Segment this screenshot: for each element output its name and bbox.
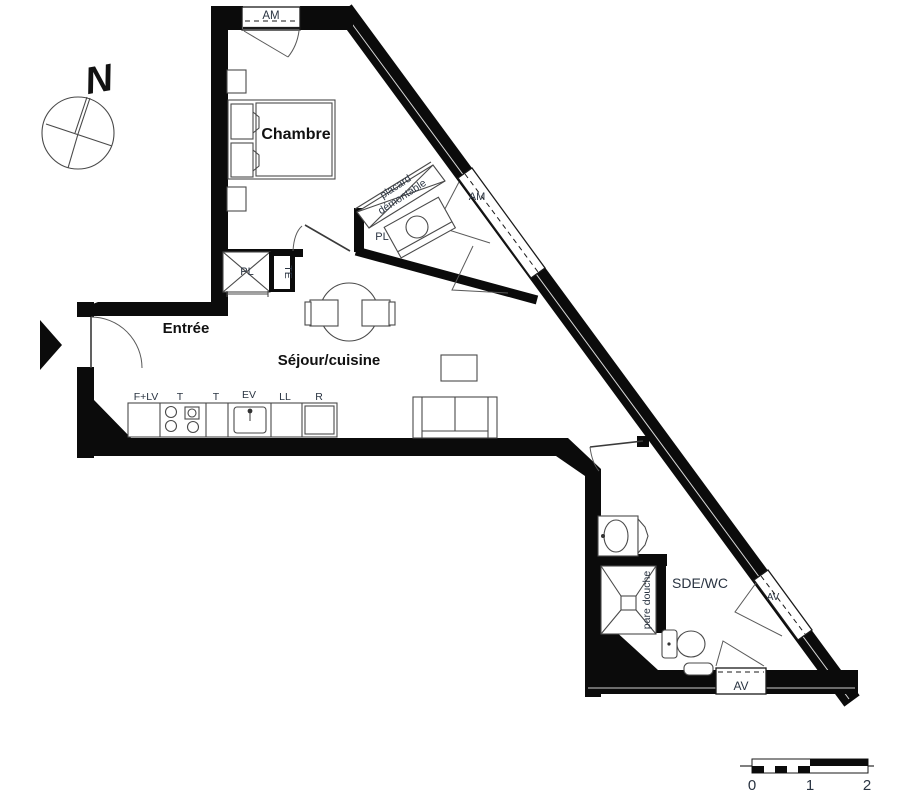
- label-ll: LL: [279, 391, 291, 403]
- casement-line: [244, 31, 288, 57]
- entrance-arrow: [40, 320, 62, 370]
- window-label: AV: [767, 592, 780, 603]
- label-te: TE: [282, 265, 294, 278]
- top-wall-left: [211, 6, 243, 30]
- toilet: [662, 630, 705, 658]
- window-label: AV: [733, 679, 748, 693]
- window-label: AM: [469, 191, 486, 203]
- left-wall-stub: [77, 302, 94, 317]
- chair-back: [305, 302, 311, 325]
- chair-back: [389, 302, 395, 325]
- entry-top-wall: [77, 302, 228, 316]
- room-label-bedroom: Chambre: [261, 126, 330, 143]
- faucet: [248, 409, 253, 414]
- desk-chair: [406, 216, 428, 238]
- left-wall-bevel: [94, 400, 131, 438]
- label-flv: F+LV: [134, 391, 159, 403]
- compass-needle-south: [68, 134, 78, 168]
- casement-arc: [288, 31, 299, 57]
- compass-needle-north: [75, 97, 90, 134]
- bathroom-sink: [598, 516, 648, 556]
- nightstand: [227, 187, 246, 211]
- bedroom-door: [293, 225, 350, 251]
- room-label-living: Séjour/cuisine: [278, 352, 381, 369]
- label-t2: T: [213, 391, 220, 403]
- label-r: R: [315, 391, 323, 403]
- bath-mat: [684, 663, 713, 675]
- nook-slope-wall: [356, 251, 537, 300]
- label-pare-douche: pare douche: [641, 571, 653, 630]
- room-label-entry: Entrée: [163, 320, 210, 337]
- chair: [310, 300, 338, 326]
- scale-bar: 0 1 2: [740, 759, 874, 794]
- window-am-top: AM: [242, 7, 300, 57]
- top-wall-right: [300, 6, 353, 30]
- scale-tick-2: 2: [863, 777, 871, 794]
- window-av-diagonal: AV: [735, 570, 812, 640]
- label-ev: EV: [242, 389, 256, 401]
- compass: N: [42, 57, 118, 169]
- window-av-bottom: AV: [716, 641, 766, 694]
- pillow: [231, 104, 253, 139]
- scale-tick-1: 1: [806, 777, 814, 794]
- label-t1: T: [177, 391, 184, 403]
- room-label-bathroom: SDE/WC: [672, 575, 728, 591]
- casement-fan: [716, 641, 764, 666]
- kitchen-counter: [128, 403, 337, 437]
- entry-door: [91, 317, 142, 368]
- coffee-table: [441, 355, 477, 381]
- compass-axis: [46, 124, 112, 146]
- compass-n-label: N: [82, 57, 118, 103]
- label-pl-nook: PL: [375, 231, 388, 243]
- shower-screen-wall: [656, 566, 666, 633]
- floor-plan: AM AM AV AV: [0, 0, 909, 800]
- scale-tick-0: 0: [748, 777, 756, 794]
- bathroom-bottom-wall-right: [766, 670, 858, 694]
- pillow: [231, 143, 253, 177]
- chair: [362, 300, 390, 326]
- left-wall-lower: [77, 367, 94, 458]
- window-label: AM: [262, 10, 279, 22]
- label-pl-closet: PL: [240, 266, 253, 278]
- nightstand: [227, 70, 246, 93]
- walls: [77, 6, 858, 701]
- living-bottom-wall: [94, 438, 568, 456]
- kitchen-labels: F+LV T T EV LL R: [134, 389, 324, 403]
